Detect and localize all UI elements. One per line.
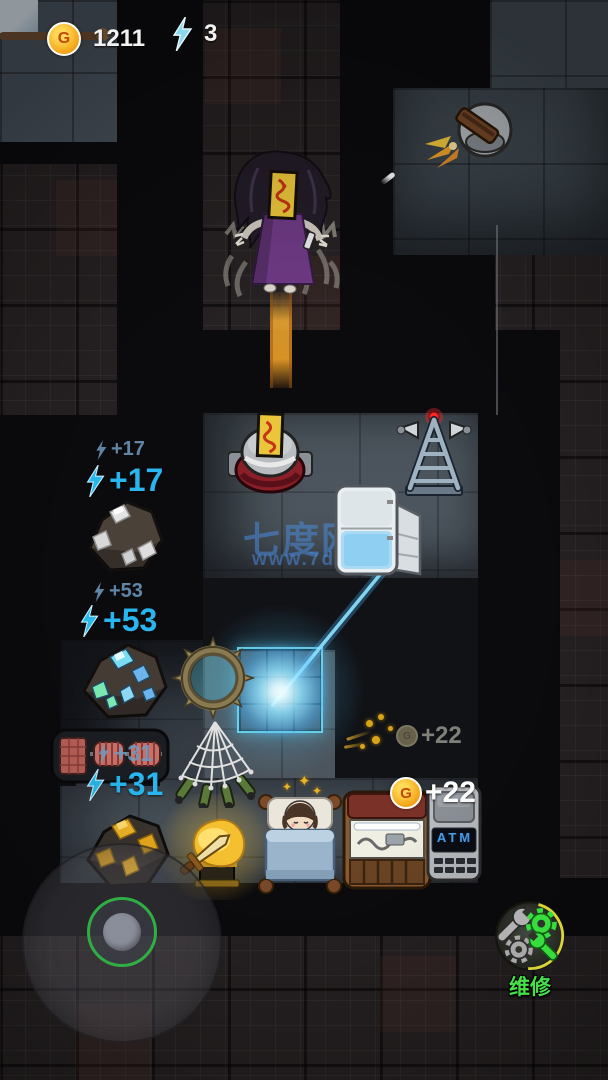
bed-corner — [0, 0, 38, 33]
brick-tint — [380, 956, 456, 1032]
bolt-icon — [78, 605, 100, 637]
antenna-wire — [496, 225, 498, 415]
sparkle-icon: ✦ — [298, 772, 311, 790]
ghost-enemy — [218, 138, 348, 298]
repair-label: 维修 — [494, 971, 566, 1001]
wrench-gear-icon — [494, 900, 566, 972]
energy-gain-old: +31 — [96, 740, 153, 767]
coin-icon: G — [47, 22, 81, 56]
game-scene: 七度网 www.7do.net — [0, 0, 608, 1080]
gold-gain-old: G +22 — [396, 722, 462, 750]
yellow-light-beam — [270, 292, 292, 388]
web-trap — [165, 716, 263, 808]
sparkle-icon: ✦ — [282, 780, 292, 794]
silver-ore — [80, 490, 170, 580]
energy-gain-old: +53 — [92, 580, 143, 603]
gold-gain-new: G +22 — [390, 776, 476, 810]
crystal-ore — [76, 635, 176, 725]
gold-spark — [388, 726, 393, 731]
talisman-icon — [269, 171, 297, 218]
talisman-turret — [228, 412, 314, 496]
gold-spark — [372, 736, 380, 744]
sleeping-character — [284, 801, 316, 831]
energy-gain-new: +17 — [84, 462, 163, 499]
brick-tint — [560, 560, 608, 636]
fridge — [332, 482, 424, 582]
wall — [0, 140, 117, 164]
bolt-icon — [84, 465, 106, 497]
bolt-icon — [84, 769, 106, 801]
thorn-ring-trap — [166, 632, 260, 724]
gold-amount: 1211 — [93, 25, 145, 53]
bolt-icon — [96, 743, 111, 764]
wall — [478, 413, 560, 883]
gold-spark — [360, 744, 365, 749]
energy-bolt-icon — [170, 17, 194, 51]
sparkle-icon: ✦ — [312, 784, 322, 798]
bolt-icon — [92, 582, 106, 602]
talisman-icon — [257, 414, 282, 457]
joystick-knob[interactable] — [103, 913, 141, 951]
bucket-turret — [425, 98, 517, 170]
gold-spark — [378, 714, 384, 720]
bed — [256, 792, 344, 896]
muzzle-flash-icon — [425, 136, 459, 168]
hud-gold: G 1211 — [47, 22, 145, 56]
energy-gain-new: +53 — [78, 602, 157, 639]
hud-energy: 3 — [170, 17, 217, 51]
gold-spark — [366, 720, 373, 727]
energy-amount: 3 — [204, 20, 217, 48]
coin-icon-faded: G — [396, 725, 418, 747]
energy-gain-new: +31 — [84, 766, 163, 803]
room-top-right-bright — [490, 0, 608, 90]
bolt-icon — [94, 440, 108, 460]
repair-button[interactable]: 维修 — [494, 900, 566, 994]
energy-gain-old: +17 — [94, 438, 145, 461]
atm-label: ATM — [426, 830, 484, 845]
coin-icon: G — [390, 777, 422, 809]
